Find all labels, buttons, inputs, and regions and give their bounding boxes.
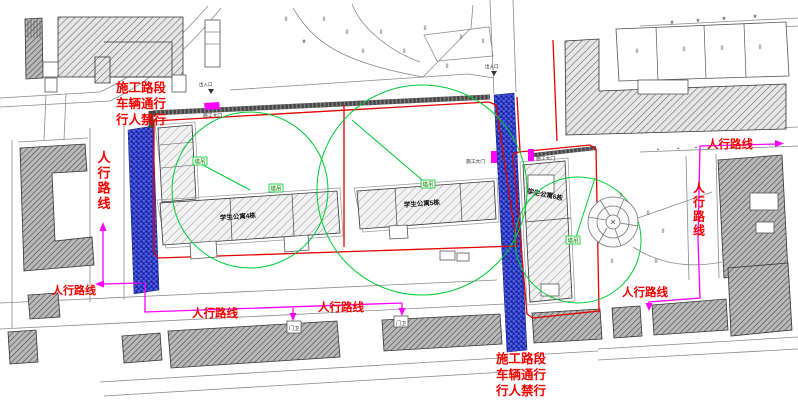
- building-block: [122, 333, 162, 363]
- grass-mark: II: [654, 259, 658, 265]
- small-building: [43, 62, 58, 77]
- building-block: [8, 330, 38, 364]
- small-building: [45, 78, 57, 92]
- crane-radius-line: [352, 120, 428, 185]
- grass-mark: II: [402, 49, 406, 55]
- building-block: [728, 263, 792, 336]
- pedestrian-route-label: 人行路线: [192, 306, 238, 320]
- street-line: [64, 94, 66, 140]
- pedestrian-route-label: 人行路线: [707, 137, 753, 151]
- building-block: [58, 17, 183, 77]
- grass-mark: II: [284, 17, 288, 23]
- trees-mark: *: [696, 17, 700, 27]
- bollards-mark: ▪: [695, 145, 697, 151]
- grass-mark: II: [661, 229, 665, 235]
- boundary-spur: [517, 97, 520, 151]
- building-inset: [756, 222, 774, 233]
- pedestrian-route-label: 人行路线: [318, 300, 364, 314]
- street-line: [104, 372, 505, 396]
- building-block: [652, 299, 728, 335]
- grass-mark: II: [682, 47, 686, 53]
- park-walk: [230, 74, 494, 90]
- gate-label: 施工大门: [203, 112, 222, 119]
- street-line: [598, 337, 798, 349]
- entrance-label: 出入口: [485, 63, 499, 70]
- building-block: [718, 155, 788, 278]
- grass-mark: II: [361, 49, 365, 55]
- building-inset: [750, 193, 778, 210]
- building-block: [612, 306, 642, 338]
- gate-marker: [528, 149, 534, 161]
- street-line: [18, 138, 88, 142]
- closure-line: 车辆通行: [496, 367, 547, 382]
- building-block: [95, 57, 110, 83]
- pedestrian-route-label: 人行路线: [52, 283, 96, 297]
- grass-mark: II: [635, 49, 639, 55]
- grass-mark: II: [322, 17, 326, 23]
- arrow-down-icon: [290, 313, 297, 321]
- closure-line: 行人禁行: [115, 112, 167, 127]
- trees-mark: *: [670, 19, 674, 29]
- bollard-icons: ▪▪▪: [657, 145, 697, 153]
- entrance-arrow-icon: [491, 71, 497, 76]
- park: [230, 4, 494, 90]
- gate-marker: [491, 151, 497, 163]
- pedestrian-route-label-vertical: 人行路线: [692, 180, 706, 237]
- closure-line: 车辆通行: [116, 96, 167, 111]
- gate-label: 施工大门: [536, 155, 555, 162]
- guard-label: 门卫: [396, 320, 406, 327]
- grass-mark: II: [445, 64, 449, 70]
- site-plan-drawing: 门卫 门卫: [0, 0, 798, 414]
- bollards-mark: ▪: [657, 147, 659, 153]
- apartment-annex: [284, 235, 309, 252]
- grass-mark: II: [345, 30, 349, 36]
- building-block: [20, 144, 94, 271]
- trees-mark: *: [753, 13, 757, 23]
- grass-mark: II: [619, 193, 623, 199]
- apartment-annex: [389, 225, 408, 239]
- closure-line: 施工路段: [116, 80, 167, 95]
- crane-label: 塔吊: [567, 237, 578, 245]
- grass-mark: II: [423, 26, 427, 32]
- street-line: [100, 358, 500, 382]
- building-block: [168, 321, 340, 368]
- closure-line: 行人禁行: [495, 383, 547, 398]
- grass-mark: II: [459, 35, 463, 41]
- street-line: [44, 95, 46, 140]
- lot-block: [616, 22, 789, 81]
- street-line: [598, 349, 798, 360]
- small-building: [172, 75, 186, 92]
- crane-label: 塔吊: [270, 185, 281, 193]
- site-office: [440, 251, 455, 260]
- arrow-right-icon: [775, 140, 784, 147]
- pedestrian-route-label: 人行路线: [622, 285, 668, 299]
- closure-line: 施工路段: [496, 351, 547, 366]
- site-office: [457, 253, 469, 261]
- pedestrian-route-label-vertical: 人行路线: [96, 150, 111, 211]
- arrow-down-icon: [399, 308, 406, 316]
- grass-mark: II: [758, 45, 762, 51]
- crane-radius-line: [201, 164, 250, 190]
- plaza-walk: [633, 247, 722, 265]
- guard-label: 门卫: [289, 325, 299, 332]
- arrow-left-icon: [95, 281, 104, 288]
- closure-notice-bottom: 施工路段 车辆通行 行人禁行: [495, 351, 547, 398]
- arrow-down-icon: [646, 303, 653, 311]
- grass-mark: II: [720, 46, 724, 52]
- crane-label: 塔吊: [422, 181, 433, 189]
- entrance-label: 出入口: [199, 81, 213, 88]
- boundary-spur: [553, 40, 557, 141]
- trees-mark: *: [722, 15, 726, 25]
- arrow-up-icon: [100, 222, 107, 231]
- small-building: [205, 20, 220, 67]
- park-path: [293, 8, 423, 77]
- gate-marker: [204, 102, 220, 110]
- entrance-arrow-icon: [208, 89, 214, 94]
- apartment-annex: [541, 284, 559, 296]
- street-line: [513, 0, 516, 92]
- closure-notice-top: 施工路段 车辆通行 行人禁行: [115, 80, 167, 127]
- bollards-mark: ▪: [677, 146, 679, 152]
- gate-label: 施工大门: [466, 158, 485, 165]
- grass-mark: II: [610, 259, 614, 265]
- street-line: [686, 156, 689, 280]
- grass-mark: II: [481, 39, 485, 45]
- grass-mark: II: [379, 30, 383, 36]
- crane-label: 塔吊: [194, 158, 205, 166]
- grass-mark: II: [646, 211, 650, 217]
- building-notch: [638, 80, 688, 94]
- trees-mark: *: [302, 38, 306, 48]
